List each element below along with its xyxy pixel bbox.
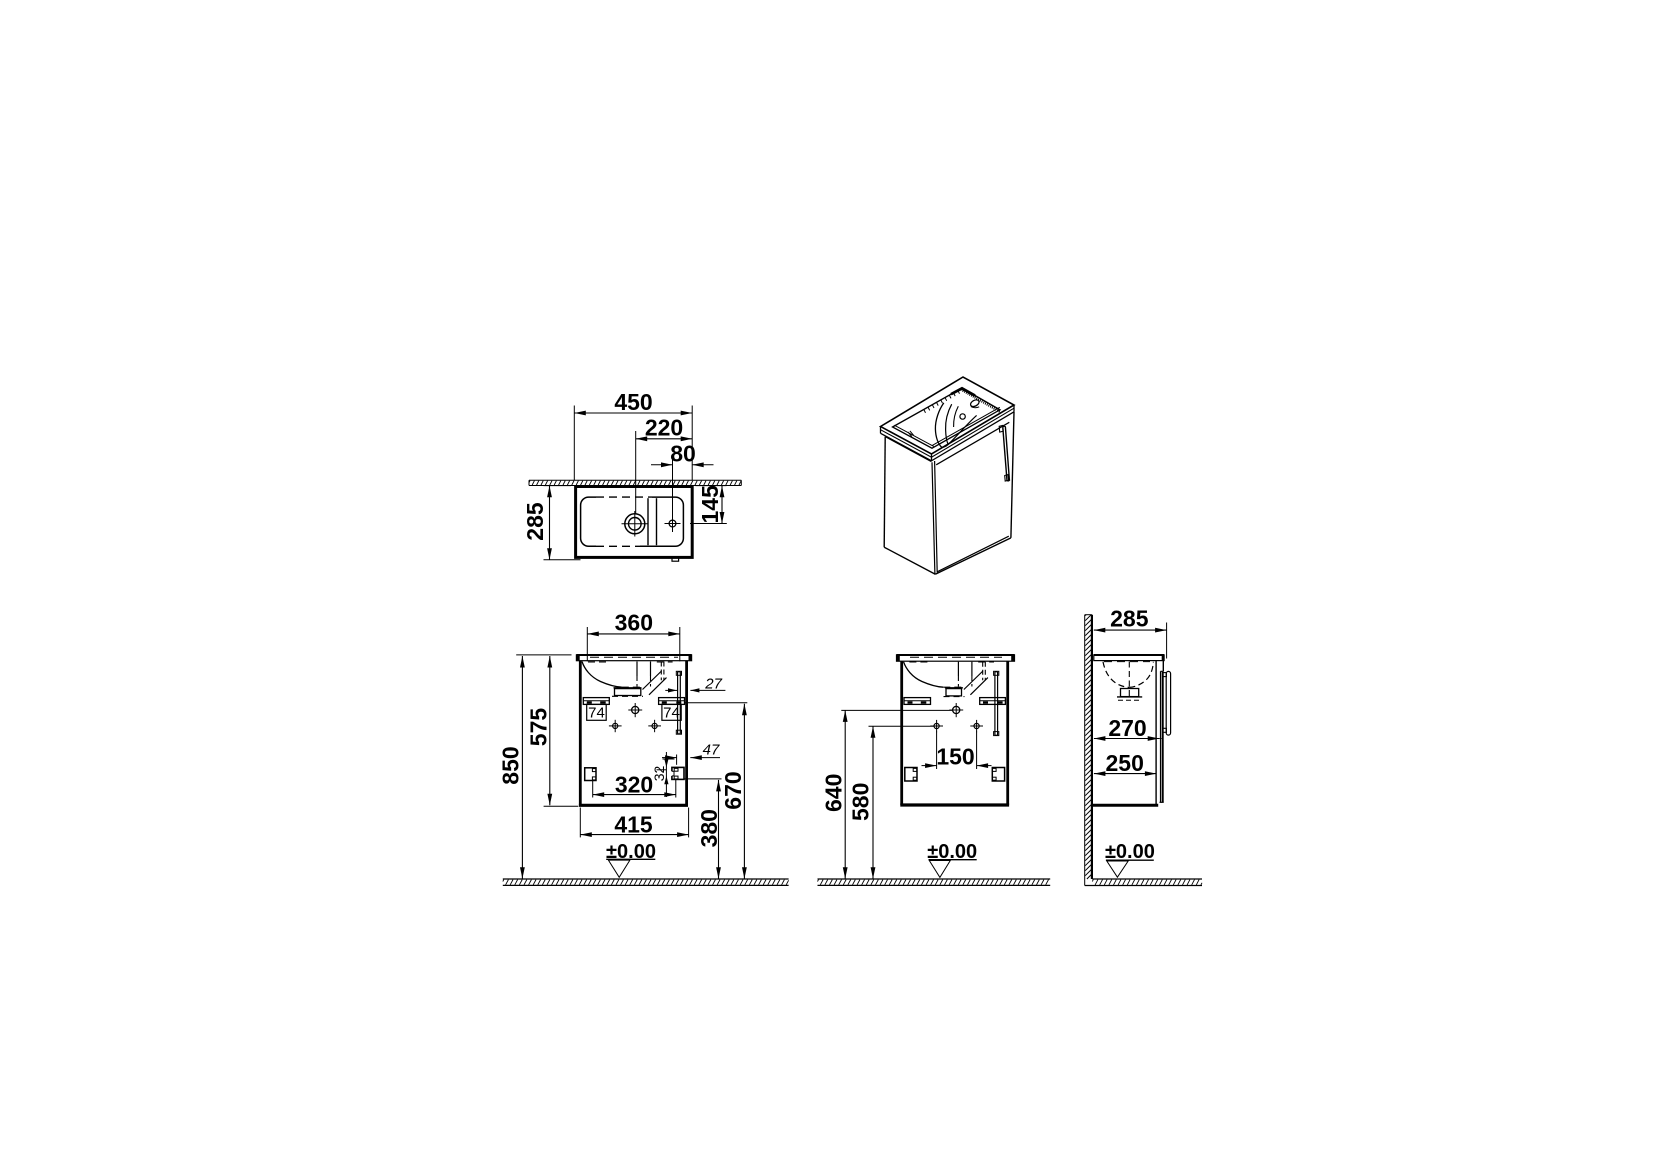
svg-text:850: 850 [497,746,523,784]
svg-text:670: 670 [720,771,746,809]
svg-text:285: 285 [1110,605,1149,631]
svg-text:32: 32 [651,766,667,782]
svg-text:220: 220 [645,415,683,441]
svg-text:80: 80 [670,441,696,467]
svg-text:360: 360 [615,610,653,636]
svg-text:150: 150 [936,744,974,770]
svg-text:47: 47 [703,742,720,759]
svg-text:415: 415 [614,811,653,837]
svg-text:145: 145 [697,485,723,524]
svg-text:74: 74 [588,704,605,721]
svg-text:285: 285 [522,502,548,541]
svg-text:270: 270 [1108,715,1146,741]
svg-text:580: 580 [848,783,874,821]
svg-text:640: 640 [821,774,847,812]
svg-text:320: 320 [615,772,653,798]
svg-text:450: 450 [614,389,652,415]
svg-text:74: 74 [663,704,680,721]
svg-text:27: 27 [704,676,722,693]
svg-text:250: 250 [1106,750,1144,776]
svg-text:575: 575 [526,708,552,747]
svg-text:380: 380 [696,809,722,847]
